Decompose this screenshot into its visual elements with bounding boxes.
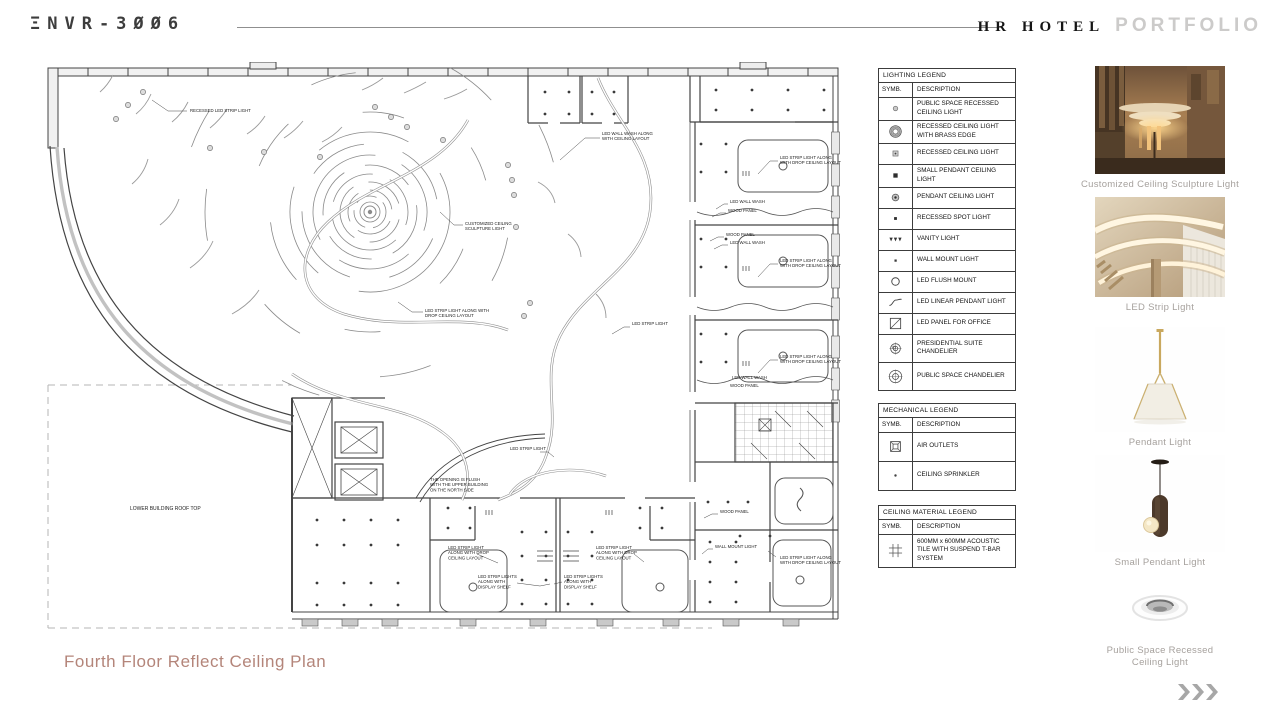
plan-annotation: WOOD PANEL bbox=[726, 232, 755, 237]
recessed-light-photo bbox=[1103, 578, 1218, 640]
legend-title: MECHANICAL LEGEND bbox=[879, 404, 1015, 418]
legend-row: PENDANT CEILING LIGHT bbox=[879, 188, 1015, 209]
legend-description: PUBLIC SPACE CHANDELIER bbox=[913, 363, 1015, 390]
legend-description: VANITY LIGHT bbox=[913, 230, 1015, 250]
plan-annotation: LED STRIP LIGHTALONG WITH DROPCEILING LA… bbox=[448, 545, 489, 560]
plan-annotation: RECESSED LED STRIP LIGHT bbox=[190, 108, 251, 113]
floor-plan-area: RECESSED LED STRIP LIGHTLED WALL WASH AL… bbox=[40, 62, 870, 647]
led-strip-curves bbox=[292, 78, 651, 500]
legend-description: CEILING SPRINKLER bbox=[913, 462, 1015, 490]
legend-header: SYMB.DESCRIPTION bbox=[879, 418, 1015, 433]
legend-row: AIR OUTLETS bbox=[879, 433, 1015, 462]
legend-symbol-recessed-icon bbox=[879, 144, 913, 164]
legend-symbol-air-icon bbox=[879, 433, 913, 461]
plan-annotations: RECESSED LED STRIP LIGHTLED WALL WASH AL… bbox=[130, 100, 841, 589]
legend-symbol-wallmount-icon bbox=[879, 251, 913, 271]
legend-row: PRESIDENTIAL SUITE CHANDELIER bbox=[879, 335, 1015, 363]
plan-annotation: LED WALL WASH bbox=[732, 375, 767, 380]
legend-row: 600MM x 600MM ACOUSTIC TILE WITH SUSPEND… bbox=[879, 535, 1015, 567]
plan-annotation: LED STRIP LIGHT bbox=[632, 321, 668, 326]
legend-description: AIR OUTLETS bbox=[913, 433, 1015, 461]
legend-description: RECESSED CEILING LIGHT WITH BRASS EDGE bbox=[913, 121, 1015, 143]
legend-row: SMALL PENDANT CEILING LIGHT bbox=[879, 165, 1015, 188]
curved-facade bbox=[50, 146, 294, 432]
product-card-pendant: Pendant Light bbox=[1078, 327, 1242, 449]
product-caption: Customized Ceiling Sculpture Light bbox=[1078, 179, 1242, 191]
plan-annotation: LED STRIP LIGHT ALONGWITH DROP CEILING L… bbox=[780, 258, 841, 268]
wood-panel-lines bbox=[486, 171, 833, 515]
plan-annotation: LED WALL WASH bbox=[730, 240, 765, 245]
plan-annotation: LED STRIP LIGHT ALONGWITH DROP CEILING L… bbox=[780, 155, 841, 165]
plan-annotation: WOOD PANEL bbox=[720, 509, 749, 514]
next-page-chevrons-icon[interactable] bbox=[1178, 684, 1222, 705]
legend-title: CEILING MATERIAL LEGEND bbox=[879, 506, 1015, 520]
legend-row: RECESSED CEILING LIGHT bbox=[879, 144, 1015, 165]
product-caption: LED Strip Light bbox=[1078, 302, 1242, 314]
outer-walls bbox=[48, 62, 838, 619]
plan-annotation: LOWER BUILDING ROOF TOP bbox=[130, 506, 201, 512]
legend-symbol-chandpublic-icon bbox=[879, 363, 913, 390]
legend-row: RECESSED CEILING LIGHT WITH BRASS EDGE bbox=[879, 121, 1015, 144]
legend-description: LED PANEL FOR OFFICE bbox=[913, 314, 1015, 334]
plan-annotation: THE OPENING IS FLUSHWITH THE UPPER BUILD… bbox=[430, 477, 489, 492]
led-strip-photo bbox=[1095, 197, 1225, 297]
brand-title: HR HOTEL PORTFOLIO bbox=[978, 15, 1262, 37]
legend-row: RECESSED SPOT LIGHT bbox=[879, 209, 1015, 230]
legend-header: SYMB.DESCRIPTION bbox=[879, 520, 1015, 535]
legend-row: CEILING SPRINKLER bbox=[879, 462, 1015, 490]
legend-symbol-spot-icon bbox=[879, 209, 913, 229]
header-divider-line bbox=[237, 27, 1003, 28]
product-caption: Pendant Light bbox=[1078, 437, 1242, 449]
plan-annotation: LED STRIP LIGHT bbox=[510, 446, 546, 451]
legend-symbol-panel-icon bbox=[879, 314, 913, 334]
legend-title: LIGHTING LEGEND bbox=[879, 69, 1015, 83]
product-card-led-strip: LED Strip Light bbox=[1078, 197, 1242, 314]
room-dots bbox=[544, 91, 571, 116]
legend-row: LED PANEL FOR OFFICE bbox=[879, 314, 1015, 335]
floor-plan-drawing: RECESSED LED STRIP LIGHTLED WALL WASH AL… bbox=[40, 62, 870, 647]
legend-description: SMALL PENDANT CEILING LIGHT bbox=[913, 165, 1015, 187]
ceiling-sculpture-swirl bbox=[126, 62, 613, 456]
legend-symbol-recessedpublic-icon bbox=[879, 98, 913, 120]
brand-portfolio-label: PORTFOLIO bbox=[1115, 15, 1262, 37]
pendant-light-photo bbox=[1095, 327, 1225, 432]
page-title: Fourth Floor Reflect Ceiling Plan bbox=[64, 652, 326, 672]
ceiling-material-legend: CEILING MATERIAL LEGEND SYMB.DESCRIPTION… bbox=[878, 505, 1016, 568]
product-caption: Public Space Recessed Ceiling Light bbox=[1078, 645, 1242, 670]
legend-header: SYMB.DESCRIPTION bbox=[879, 83, 1015, 98]
acoustic-tile-room bbox=[735, 403, 833, 462]
legend-description: PENDANT CEILING LIGHT bbox=[913, 188, 1015, 208]
legend-symbol-sprinkler-icon bbox=[879, 462, 913, 490]
mechanical-legend: MECHANICAL LEGEND SYMB.DESCRIPTION AIR O… bbox=[878, 403, 1016, 491]
product-card-recessed: Public Space Recessed Ceiling Light bbox=[1078, 578, 1242, 670]
legend-description: 600MM x 600MM ACOUSTIC TILE WITH SUSPEND… bbox=[913, 535, 1015, 567]
legend-description: RECESSED SPOT LIGHT bbox=[913, 209, 1015, 229]
course-logo: ΞNVR-3ØØ6 bbox=[30, 14, 185, 34]
legend-symbol-linear-icon bbox=[879, 293, 913, 313]
legend-row: LED LINEAR PENDANT LIGHT bbox=[879, 293, 1015, 314]
plan-annotation: LED STRIP LIGHTSALONG WITHDISPLAY SHELF bbox=[478, 574, 517, 589]
plan-annotation: LED STRIP LIGHT ALONGWITH DROP CEILING L… bbox=[780, 555, 841, 565]
legend-symbol-chandsuite-icon bbox=[879, 335, 913, 362]
legend-description: PUBLIC SPACE RECESSED CEILING LIGHT bbox=[913, 98, 1015, 120]
lobby-recessed-lights bbox=[113, 89, 532, 318]
legend-symbol-smallpendant-icon bbox=[879, 165, 913, 187]
legend-description: WALL MOUNT LIGHT bbox=[913, 251, 1015, 271]
legend-symbol-vanity-icon bbox=[879, 230, 913, 250]
small-pendant-photo bbox=[1095, 455, 1225, 552]
plan-annotation: CUSTOMIZED CEILINGSCULPTURE LIGHT bbox=[465, 221, 512, 231]
plan-annotation: LED WALL WASH bbox=[730, 199, 765, 204]
plan-annotation: LED WALL WASH ALONGWITH CEILING LAYOUT bbox=[602, 131, 654, 141]
ceiling-sculpture-photo bbox=[1095, 66, 1225, 174]
plan-annotation: WOOD PANEL bbox=[730, 383, 759, 388]
legend-row: WALL MOUNT LIGHT bbox=[879, 251, 1015, 272]
legend-row: LED FLUSH MOUNT bbox=[879, 272, 1015, 293]
legend-row: PUBLIC SPACE CHANDELIER bbox=[879, 363, 1015, 390]
interior-walls bbox=[292, 76, 838, 612]
product-caption: Small Pendant Light bbox=[1078, 557, 1242, 569]
legend-row: PUBLIC SPACE RECESSED CEILING LIGHT bbox=[879, 98, 1015, 121]
plan-annotation: WALL MOUNT LIGHT bbox=[715, 544, 757, 549]
legend-symbol-brass-icon bbox=[879, 121, 913, 143]
brand-hotel-name: HR HOTEL bbox=[978, 19, 1106, 36]
legend-symbol-flush-icon bbox=[879, 272, 913, 292]
legend-symbol-pendant-icon bbox=[879, 188, 913, 208]
window-marks bbox=[832, 132, 840, 422]
product-card-small-pendant: Small Pendant Light bbox=[1078, 455, 1242, 569]
radiating-arc-hatches bbox=[100, 75, 606, 318]
lighting-legend: LIGHTING LEGEND SYMB.DESCRIPTION PUBLIC … bbox=[878, 68, 1016, 391]
legend-symbol-tile-icon bbox=[879, 535, 913, 567]
plan-annotation: WOOD PANEL bbox=[728, 208, 757, 213]
footing-pads bbox=[302, 619, 799, 626]
legend-description: LED FLUSH MOUNT bbox=[913, 272, 1015, 292]
plan-annotation: LED STRIP LIGHTALONG WITH DROPCEILING LA… bbox=[596, 545, 637, 560]
drop-ceiling-outlines bbox=[440, 140, 833, 612]
plan-annotation: LED STRIP LIGHTSALONG WITHDISPLAY SHELF bbox=[564, 574, 603, 589]
elevator-core bbox=[292, 398, 385, 500]
product-card-ceiling-sculpture: Customized Ceiling Sculpture Light bbox=[1078, 66, 1242, 191]
legend-description: LED LINEAR PENDANT LIGHT bbox=[913, 293, 1015, 313]
legend-row: VANITY LIGHT bbox=[879, 230, 1015, 251]
legend-description: PRESIDENTIAL SUITE CHANDELIER bbox=[913, 335, 1015, 362]
legend-description: RECESSED CEILING LIGHT bbox=[913, 144, 1015, 164]
plan-annotation: LED STRIP LIGHT ALONG WITHDROP CEILING L… bbox=[425, 308, 489, 318]
